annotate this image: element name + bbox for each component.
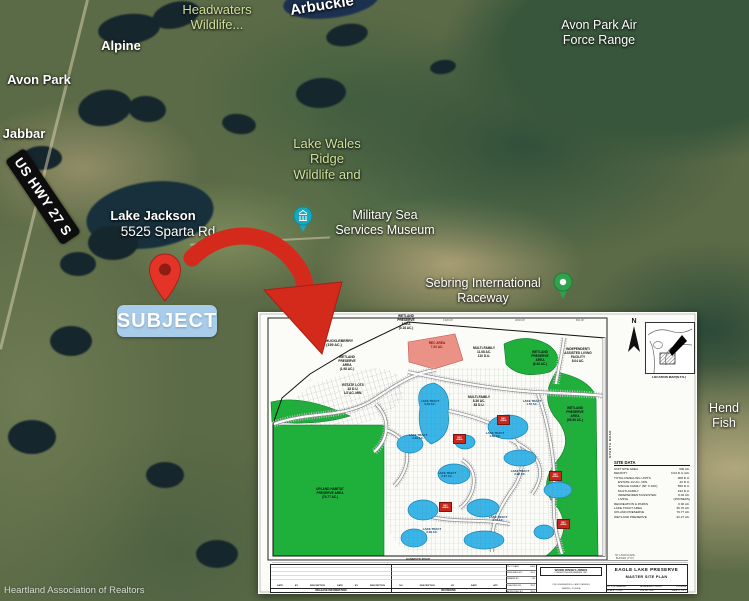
parcel-label: REC AREA 7.20 AC. bbox=[429, 341, 446, 349]
firm-line1: CIVIL ENGINEERING • LAND PLANNING bbox=[536, 584, 606, 587]
map-label: Alpine bbox=[101, 38, 141, 53]
info-label: CHECKED BY: bbox=[507, 584, 522, 589]
release-section: DATEBYDESCRIPTIONDATEBYDESCRIPTION RELEA… bbox=[271, 565, 392, 592]
lake-shape bbox=[221, 112, 257, 137]
map-label: Jabbar bbox=[3, 126, 46, 141]
lake-tract-label: LAKE TRACT 9.49 AC. bbox=[421, 400, 439, 407]
north-arrow: N bbox=[624, 318, 644, 325]
release-caption: RELEASE INFORMATION bbox=[271, 588, 391, 592]
sparta-road-label: SPARTA ROAD bbox=[608, 430, 612, 458]
sheet-label: SHEET 1 OF 1 bbox=[671, 590, 686, 592]
title-section: EAGLE LAKE PRESERVE MASTER SITE PLAN CIT… bbox=[606, 565, 687, 592]
dimension-label: 660.00' bbox=[576, 319, 584, 322]
map-label: Headwaters Wildlife... bbox=[182, 2, 251, 33]
jurisdiction-row: CITY OF SEBRING HIGHLANDS COUNTY FLORIDA bbox=[606, 585, 687, 588]
scale-row: SCALE: 1"=150' JOB NO. 0637 SHEET 1 OF 1 bbox=[606, 589, 687, 592]
parcel-label: ESTATE LOTS 42 D.U. 1/2 AC. MIN. bbox=[342, 383, 363, 395]
parcel-label: WETLAND PRESERVE AREA (6.36 AC.) bbox=[531, 350, 548, 366]
info-value: CM bbox=[532, 577, 535, 582]
site-data-value: 42.27 AC. bbox=[676, 515, 690, 519]
release-rules bbox=[271, 567, 391, 583]
location-map-caption: LOCATION MAP(N.T.S.) bbox=[645, 375, 693, 379]
info-value: WLJ bbox=[531, 571, 535, 576]
lake-shape bbox=[429, 58, 457, 75]
lake-shape bbox=[75, 86, 134, 131]
lake-tract-label: LAKE TRACT 2.98 AC. bbox=[511, 470, 529, 477]
info-rows: PLOT DATE 2008 DESIGNED BY: WLJ DRAWN BY… bbox=[506, 565, 536, 594]
site-data-table: SITE DATA UNIT SITE AREA 300 AC. DENSITY… bbox=[614, 460, 690, 519]
county-label: HIGHLANDS COUNTY bbox=[640, 586, 663, 588]
parcel-label: MULTI-FAMILY 8.36 AC. 83 D.U. bbox=[468, 395, 490, 407]
lake-tract-label: LAKE TRACT 2.09 AC. bbox=[423, 528, 441, 535]
map-label: Hend Fish bbox=[709, 401, 739, 431]
rec-area-box: REC AREA bbox=[497, 415, 510, 425]
title-block: DATEBYDESCRIPTIONDATEBYDESCRIPTION RELEA… bbox=[270, 564, 688, 593]
map-label: Avon Park Air Force Range bbox=[561, 18, 637, 48]
lake-shape bbox=[127, 94, 168, 124]
job-label: JOB NO. 0637 bbox=[640, 590, 654, 592]
dimension-label: 2640.00' bbox=[515, 319, 525, 322]
location-map-sketch bbox=[646, 323, 694, 373]
parcel-label: INDEPENDENT/ ASSISTED LIVING FACILITY 8.… bbox=[564, 347, 591, 363]
site-data-header: SITE DATA bbox=[614, 460, 690, 466]
rec-area-box: REC AREA bbox=[557, 519, 570, 529]
firm-section: WOOD KINSEY-JONES CONSULTING ENGINEERS, … bbox=[536, 565, 607, 592]
firm-subtitle: CONSULTING ENGINEERS, INC. bbox=[541, 572, 601, 575]
info-section: PLOT DATE 2008 DESIGNED BY: WLJ DRAWN BY… bbox=[506, 565, 537, 592]
revisions-section: NO.DESCRIPTIONBYDATEAPP REVISIONS bbox=[391, 565, 507, 592]
north-label: N bbox=[624, 318, 644, 325]
site-data-label: WETLAND PRESERVE bbox=[614, 515, 647, 519]
revisions-caption: REVISIONS bbox=[391, 588, 506, 592]
parcel-label: MULTI-FAMILY 11.08 AC. 110 D.U. bbox=[473, 346, 495, 358]
scale-label: SCALE: 1"=150' bbox=[607, 590, 623, 592]
lake-tract-label: LAKE TRACT 2.67 AC. bbox=[438, 472, 456, 479]
lake-tract-label: LAKE TRACT 2.19 AC. bbox=[409, 434, 427, 441]
rec-area-box: REC AREA bbox=[453, 434, 466, 444]
lake-tract-label: LAKE TRACT 1.76 AC. bbox=[523, 400, 541, 407]
map-label: Avon Park bbox=[7, 72, 71, 87]
parcel-label: UPLAND HABITAT PRESERVE AREA (79.77 AC.) bbox=[316, 487, 344, 499]
lake-shape bbox=[50, 326, 92, 356]
lake-shape bbox=[324, 21, 369, 50]
lake-shape bbox=[60, 252, 96, 276]
rec-area-box: REC AREA bbox=[439, 502, 452, 512]
info-row: APPROVED BY: WLJ bbox=[506, 590, 536, 594]
state-label: FLORIDA bbox=[677, 586, 686, 588]
info-label: DESIGNED BY: bbox=[507, 571, 522, 576]
site-data-rows: UNIT SITE AREA 300 AC. DENSITY 3.03 D.U.… bbox=[614, 467, 690, 519]
hammock-road-label: HAMMOCK ROAD bbox=[406, 557, 430, 561]
sheet-title: MASTER SITE PLAN bbox=[606, 575, 687, 579]
lake-tract-label: LAKE TRACT 1.58 AC. bbox=[486, 432, 504, 439]
firm-box: WOOD KINSEY-JONES CONSULTING ENGINEERS, … bbox=[540, 567, 602, 576]
lake-shape bbox=[8, 420, 56, 454]
listing-image: Headwaters Wildlife...AlpineAvon ParkArb… bbox=[0, 0, 749, 601]
location-map-inset bbox=[645, 322, 695, 374]
parcel-label: WETLAND PRESERVE AREA (39.56 AC.) bbox=[566, 406, 583, 422]
city-label: CITY OF SEBRING bbox=[607, 586, 626, 588]
info-label: PLOT DATE bbox=[507, 565, 519, 570]
project-title: EAGLE LAKE PRESERVE bbox=[606, 567, 687, 572]
firm-line2: SEBRING, FLORIDA bbox=[536, 588, 606, 591]
site-data-row: WETLAND PRESERVE 42.27 AC. bbox=[614, 515, 690, 519]
rec-area-box: REC AREA bbox=[549, 471, 562, 481]
map-label: Lake Wales Ridge Wildlife and bbox=[293, 136, 360, 182]
watermark: Heartland Association of Realtors bbox=[4, 585, 144, 596]
info-value: WLJ bbox=[531, 584, 535, 589]
us27-road-line bbox=[0, 0, 88, 350]
parcel-label: 50' LANDSCAPE BUFFER (TYP.) bbox=[615, 554, 635, 560]
info-label: APPROVED BY: bbox=[507, 590, 523, 594]
map-label: Sebring International Raceway bbox=[425, 276, 540, 306]
subject-arrow-icon bbox=[148, 212, 358, 367]
lake-tract-label: LAKE TRACT 3.30 AC. bbox=[489, 516, 507, 523]
raceway-pin-icon bbox=[553, 272, 573, 300]
dimension-label: 1320.00' bbox=[443, 319, 453, 322]
info-value: 2008 bbox=[530, 565, 535, 570]
lake-shape bbox=[196, 540, 238, 568]
revisions-rules bbox=[391, 567, 506, 583]
parcel-label: WETLAND PRESERVE AREA (0.18 AC.) bbox=[397, 314, 414, 330]
lake-shape bbox=[295, 76, 347, 109]
info-label: DRAWN BY: bbox=[507, 577, 519, 582]
info-value: WLJ bbox=[531, 590, 535, 594]
lake-shape bbox=[146, 462, 184, 488]
